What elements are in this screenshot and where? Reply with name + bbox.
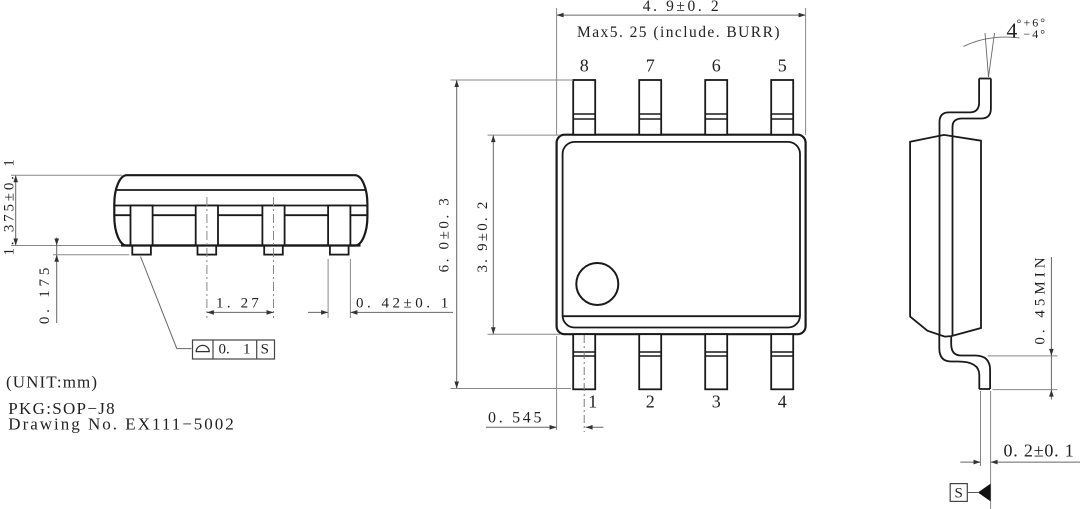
- svg-text:0. 2±0. 1: 0. 2±0. 1: [1004, 441, 1075, 461]
- svg-text:0. 42±0. 1: 0. 42±0. 1: [356, 296, 452, 312]
- svg-text:1. 375±0. 1: 1. 375±0. 1: [2, 156, 18, 255]
- svg-text:2: 2: [646, 392, 655, 412]
- svg-text:1: 1: [243, 342, 251, 358]
- svg-text:Drawing No. EX111−5002: Drawing No. EX111−5002: [8, 415, 236, 434]
- svg-text:Max5. 25 (include. BURR): Max5. 25 (include. BURR): [577, 24, 781, 41]
- svg-text:1: 1: [588, 392, 597, 412]
- svg-text:3. 9±0. 2: 3. 9±0. 2: [475, 199, 491, 272]
- svg-text:7: 7: [646, 56, 655, 76]
- svg-text:6: 6: [712, 56, 721, 76]
- svg-text:5: 5: [778, 56, 787, 76]
- svg-text:S: S: [261, 342, 269, 358]
- svg-text:°: °: [1017, 17, 1022, 31]
- svg-text:4. 9±0. 2: 4. 9±0. 2: [643, 0, 721, 15]
- svg-text:0. 45MIN: 0. 45MIN: [1033, 253, 1049, 344]
- svg-text:0.: 0.: [219, 342, 230, 358]
- svg-text:S: S: [955, 486, 963, 502]
- svg-text:3: 3: [712, 392, 721, 412]
- svg-text:8: 8: [580, 56, 589, 76]
- svg-text:−4°: −4°: [1024, 27, 1048, 41]
- svg-text:1. 27: 1. 27: [216, 296, 262, 312]
- svg-text:(UNIT:mm): (UNIT:mm): [6, 373, 98, 392]
- svg-text:4: 4: [778, 392, 787, 412]
- svg-text:0. 175: 0. 175: [37, 264, 53, 324]
- svg-text:0. 545: 0. 545: [488, 410, 544, 427]
- svg-text:6. 0±0. 3: 6. 0±0. 3: [437, 196, 453, 273]
